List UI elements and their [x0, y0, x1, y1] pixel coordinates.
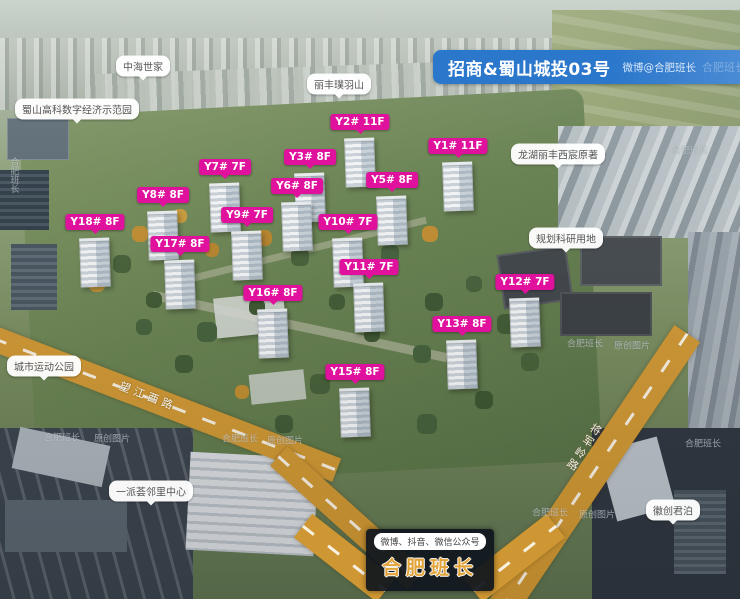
poi-label: 蜀山高科数字经济示范园 — [15, 99, 139, 120]
watermark: 原创图片 — [614, 339, 650, 352]
industrial-cluster — [0, 428, 193, 599]
clubhouse-roof — [249, 369, 307, 405]
residential-building — [376, 195, 408, 245]
poi-label: 徽创君泊 — [646, 500, 700, 521]
residential-building — [281, 201, 313, 251]
poi-label: 丽丰璞羽山 — [307, 74, 371, 95]
building-label: Y17# 8F — [150, 236, 209, 252]
residential-building — [353, 282, 385, 332]
building-label: Y5# 8F — [366, 172, 418, 188]
building-label: Y3# 8F — [284, 149, 336, 165]
banner-watermark: 合肥班长 — [702, 59, 740, 75]
building-label: Y7# 7F — [199, 159, 251, 175]
banner-title: 招商&蜀山城投03号 — [433, 55, 610, 80]
building-label: Y18# 8F — [65, 214, 124, 230]
building-label: Y6# 8F — [271, 178, 323, 194]
brand-name: 合肥班长 — [382, 553, 478, 580]
tech-park-offices — [0, 112, 103, 352]
autumn-trees — [0, 0, 4, 4]
residential-building — [446, 339, 478, 389]
watermark: 合肥班长 — [532, 506, 568, 519]
watermark: 合肥班长 — [685, 437, 721, 450]
aerial-site-photo: 望江西路 将军岭路 Y2# 11FY1# 11FY3# 8FY7# 7FY5# … — [0, 0, 740, 599]
trees — [0, 0, 4, 4]
residential-building — [442, 161, 474, 211]
building-label: Y11# 7F — [339, 259, 398, 275]
building-label: Y9# 7F — [221, 207, 273, 223]
building-label: Y10# 7F — [318, 214, 377, 230]
building-label: Y1# 11F — [428, 138, 487, 154]
watermark: 合肥班长 — [8, 157, 21, 193]
poi-label: 一派荟邻里中心 — [109, 481, 193, 502]
residential-building — [509, 297, 541, 347]
poi-label: 规划科研用地 — [529, 228, 603, 249]
building-label: Y12# 7F — [495, 274, 554, 290]
watermark: 合肥班长 — [567, 337, 603, 350]
residential-building — [257, 308, 289, 358]
title-banner: 招商&蜀山城投03号 微博@合肥班长 合肥班长 — [433, 50, 740, 84]
watermark: 原创图片 — [579, 508, 615, 521]
poi-label: 龙湖丽丰西宸原著 — [511, 144, 605, 165]
watermark: 合肥班长 — [222, 432, 258, 445]
building-label: Y16# 8F — [243, 285, 302, 301]
poi-label: 城市运动公园 — [7, 356, 81, 377]
residential-building — [231, 230, 263, 280]
east-buildings — [688, 232, 740, 442]
watermark: 原创图片 — [267, 434, 303, 447]
building-label: Y13# 8F — [432, 316, 491, 332]
poi-label: 中海世家 — [116, 56, 170, 77]
residential-building — [79, 237, 111, 287]
building-label: Y8# 8F — [137, 187, 189, 203]
banner-subtitle: 微博@合肥班长 — [622, 60, 696, 75]
watermark: 原创图片 — [94, 432, 130, 445]
building-label: Y2# 11F — [330, 114, 389, 130]
footer-plaque: 微博、抖音、微信公众号 合肥班长 — [366, 529, 494, 591]
building-label: Y15# 8F — [325, 364, 384, 380]
watermark: 合肥班长 — [44, 431, 80, 444]
sky-horizon — [0, 0, 740, 52]
residential-building — [339, 387, 371, 437]
site-path — [152, 291, 447, 362]
watermark: 合肥班长 — [672, 144, 708, 157]
social-channels-label: 微博、抖音、微信公众号 — [374, 533, 485, 550]
residential-building — [164, 259, 196, 309]
